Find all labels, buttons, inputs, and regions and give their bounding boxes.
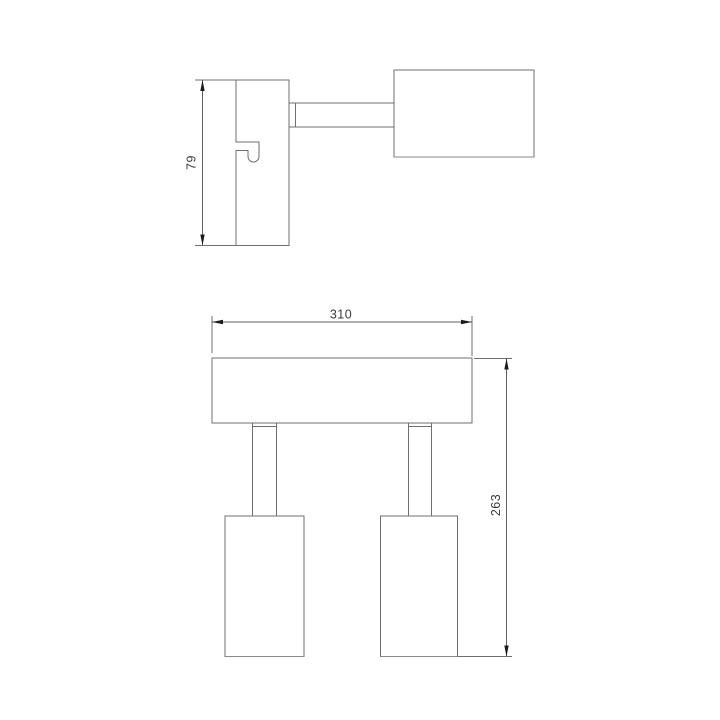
dim-263-arrow-down-icon	[504, 646, 508, 657]
lamp-head-side	[394, 70, 534, 157]
dim-79-arrow-down-icon	[200, 235, 204, 246]
right-stem	[409, 423, 432, 516]
dimension-310: 310	[212, 308, 472, 357]
dimension-drawing: 79	[0, 0, 720, 720]
dim-79-label: 79	[185, 155, 199, 170]
dim-79-arrow-up-icon	[200, 80, 204, 91]
left-stem	[253, 423, 277, 516]
dim-310-arrow-right-icon	[461, 320, 472, 324]
drawing-canvas: 79	[0, 0, 720, 720]
dim-263-label: 263	[489, 494, 503, 516]
front-view: 310 263	[212, 308, 512, 657]
dim-263-arrow-up-icon	[504, 359, 508, 370]
dim-310-label: 310	[330, 308, 352, 322]
dim-310-arrow-left-icon	[212, 320, 223, 324]
bracket-outline-with-hook-slot	[236, 80, 289, 246]
lamp-head-left	[225, 516, 304, 657]
mounting-bar	[212, 358, 472, 423]
dimension-79: 79	[185, 80, 237, 246]
swivel-arm	[289, 103, 394, 127]
side-view: 79	[185, 70, 535, 246]
dimension-263: 263	[458, 359, 512, 657]
lamp-head-right	[381, 516, 458, 657]
